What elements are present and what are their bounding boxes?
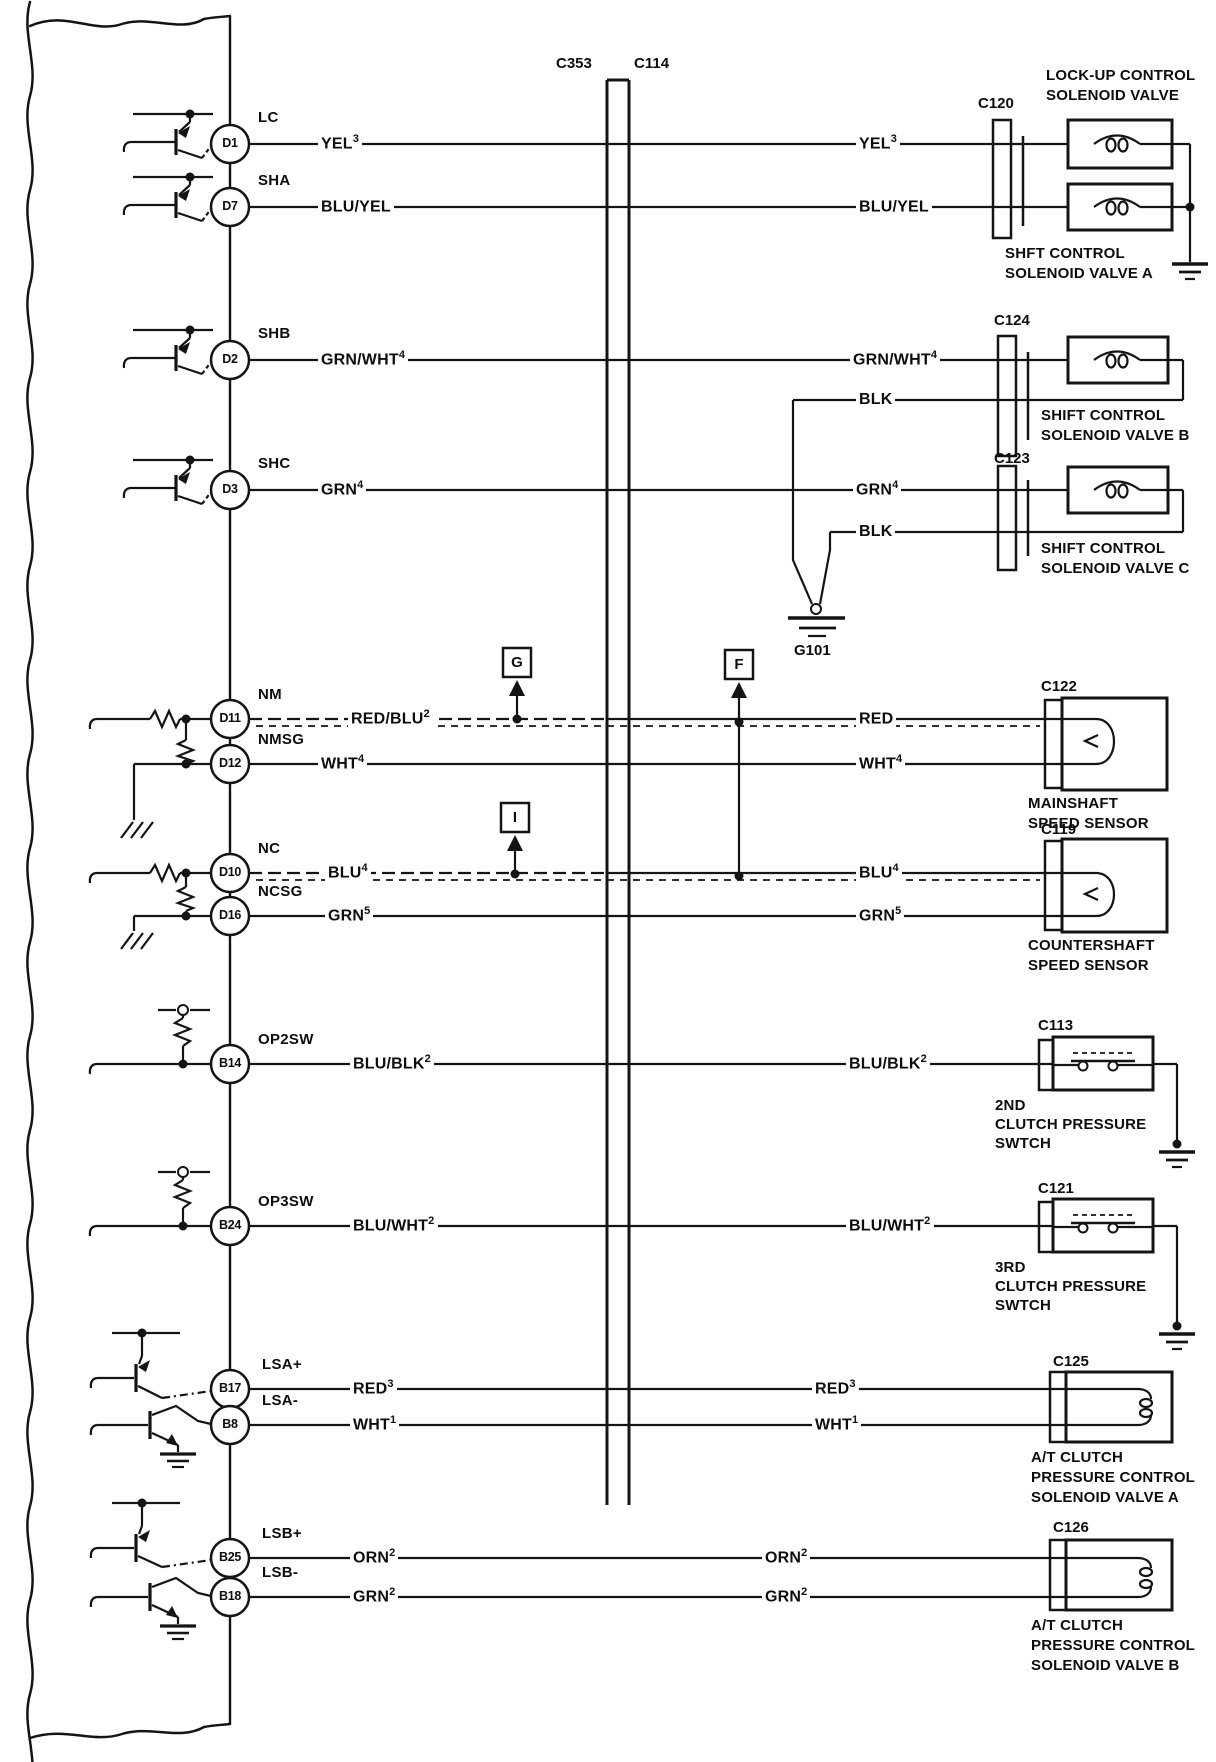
wire-label: GRN/WHT4 <box>850 349 940 370</box>
wire-label: ORN2 <box>350 1547 398 1568</box>
wire-label: RED3 <box>812 1378 859 1399</box>
transistor-pair-icon <box>91 1333 211 1467</box>
resistor-network-icon <box>90 711 211 838</box>
component-name: SOLENOID VALVE A <box>1031 1490 1179 1506</box>
signal-sha: SHA <box>258 173 291 189</box>
component-name: SOLENOID VALVE C <box>1041 561 1190 577</box>
signal-lc: LC <box>258 110 279 126</box>
wire-label: WHT4 <box>856 753 905 774</box>
pin-d10: D10 <box>211 866 249 879</box>
wiring-diagram-page: C353 C114 G F I G101 D1 D7 D2 D3 D11 D12… <box>0 0 1216 1762</box>
pin-b14: B14 <box>211 1057 249 1070</box>
connector-id-c126: C126 <box>1053 1520 1089 1536</box>
connector-c124 <box>998 336 1028 456</box>
ecm-torn-border-icon <box>27 2 230 1762</box>
wire-label: WHT1 <box>350 1414 399 1435</box>
connector-c126 <box>1050 1540 1066 1610</box>
pullup-resistor-icon <box>90 1005 211 1074</box>
wire-label: GRN2 <box>762 1586 810 1607</box>
wire-label: YEL3 <box>318 133 362 154</box>
wire-label: YEL3 <box>856 133 900 154</box>
signal-op3sw: OP3SW <box>258 1194 314 1210</box>
lockup-solenoid-box <box>1068 120 1172 168</box>
wire-nc <box>249 873 1062 880</box>
wire-label: RED/BLU2 <box>348 708 433 729</box>
chassis-ground-icon <box>121 933 153 949</box>
wire-label: BLU4 <box>325 862 371 883</box>
component-name: 2ND <box>995 1098 1026 1114</box>
wire-label: RED <box>856 708 896 729</box>
transistor-icon <box>124 177 213 221</box>
ref-letter-f: F <box>725 650 753 679</box>
signal-nmsg: NMSG <box>258 732 304 748</box>
component-name: SPEED SENSOR <box>1028 958 1149 974</box>
wire-label: BLU/YEL <box>856 196 932 217</box>
signal-nm: NM <box>258 687 282 703</box>
g101-ground-icon <box>788 400 845 636</box>
ref-letter-i: I <box>501 803 529 832</box>
coil-icon <box>1094 136 1140 145</box>
wire-label-blk: BLK <box>856 523 895 542</box>
wire-label: GRN5 <box>325 905 373 926</box>
bus-connector-c353-c114 <box>607 80 629 1505</box>
signal-lsb-plus: LSB+ <box>262 1526 302 1542</box>
countershaft-sensor-box <box>1062 839 1167 932</box>
transistor-icon <box>124 330 213 374</box>
pin-d16: D16 <box>211 909 249 922</box>
wire-label: BLU/YEL <box>318 196 394 217</box>
component-name: PRESSURE CONTROL <box>1031 1470 1195 1486</box>
wire-label: WHT1 <box>812 1414 861 1435</box>
wire-label: ORN2 <box>762 1547 810 1568</box>
pin-d12: D12 <box>211 757 249 770</box>
signal-lsa-minus: LSA- <box>262 1393 298 1409</box>
coil-icon <box>1138 1558 1151 1597</box>
ref-letter-g: G <box>503 648 531 677</box>
pin-b18: B18 <box>211 1590 249 1603</box>
wire-label: BLU/WHT2 <box>846 1215 934 1236</box>
component-name: SOLENOID VALVE B <box>1041 428 1190 444</box>
connector-c120 <box>993 120 1023 238</box>
connector-id-c114: C114 <box>634 56 669 72</box>
component-name: SWTCH <box>995 1298 1051 1314</box>
wire-label: BLU/BLK2 <box>846 1053 930 1074</box>
signal-shb: SHB <box>258 326 291 342</box>
pin-b25: B25 <box>211 1551 249 1564</box>
component-name: LOCK-UP CONTROL <box>1046 68 1195 84</box>
wire-label: GRN5 <box>856 905 904 926</box>
pin-b8: B8 <box>211 1418 249 1431</box>
coil-icon <box>1094 482 1140 491</box>
pin-d1: D1 <box>211 137 249 150</box>
wire-label: BLU4 <box>856 862 902 883</box>
pin-d2: D2 <box>211 353 249 366</box>
signal-op2sw: OP2SW <box>258 1032 314 1048</box>
component-name: MAINSHAFT <box>1028 796 1118 812</box>
connector-id-c113: C113 <box>1038 1018 1073 1034</box>
at-clutch-solenoid-a-box <box>1066 1372 1172 1442</box>
transistor-icon <box>124 114 213 158</box>
connector-id-c353: C353 <box>556 56 592 72</box>
chassis-ground-icon <box>121 822 153 838</box>
component-name: SOLENOID VALVE A <box>1005 266 1153 282</box>
component-name: SOLENOID VALVE B <box>1031 1658 1180 1674</box>
component-name: A/T CLUTCH <box>1031 1618 1123 1634</box>
wire-label: BLU/BLK2 <box>350 1053 434 1074</box>
mainshaft-sensor-box <box>1062 698 1167 790</box>
pin-d3: D3 <box>211 483 249 496</box>
connector-id-c122: C122 <box>1041 679 1077 695</box>
wire-label: GRN4 <box>318 479 366 500</box>
signal-lsa-plus: LSA+ <box>262 1357 302 1373</box>
component-name: SOLENOID VALVE <box>1046 88 1179 104</box>
connector-c125 <box>1050 1372 1066 1442</box>
pin-b17: B17 <box>211 1382 249 1395</box>
wire-label: GRN4 <box>853 479 901 500</box>
signal-ncsg: NCSG <box>258 884 303 900</box>
at-clutch-solenoid-b-box <box>1066 1540 1172 1610</box>
connector-id-c121: C121 <box>1038 1181 1074 1197</box>
component-name: SPEED SENSOR <box>1028 816 1149 832</box>
component-name: SHIFT CONTROL <box>1041 541 1165 557</box>
wire-label-blk: BLK <box>856 391 895 410</box>
component-name: SHFT CONTROL <box>1005 246 1125 262</box>
signal-shc: SHC <box>258 456 291 472</box>
component-name: A/T CLUTCH <box>1031 1450 1123 1466</box>
component-name: PRESSURE CONTROL <box>1031 1638 1195 1654</box>
connector-id-c125: C125 <box>1053 1354 1089 1370</box>
ground-label-g101: G101 <box>794 643 831 659</box>
component-name: SHIFT CONTROL <box>1041 408 1165 424</box>
pin-d11: D11 <box>211 712 249 725</box>
connector-id-c123: C123 <box>994 451 1030 467</box>
component-name: COUNTERSHAFT <box>1028 938 1155 954</box>
pin-d7: D7 <box>211 200 249 213</box>
signal-nc: NC <box>258 841 280 857</box>
connector-c122 <box>1045 700 1062 788</box>
transistor-icon <box>124 460 213 504</box>
component-name: CLUTCH PRESSURE <box>995 1279 1146 1295</box>
wire-label: GRN/WHT4 <box>318 349 408 370</box>
component-name: CLUTCH PRESSURE <box>995 1117 1146 1133</box>
coil-icon <box>1094 352 1140 361</box>
component-name: SWTCH <box>995 1136 1051 1152</box>
pressure-switch-box <box>1053 1037 1195 1167</box>
wire-label: GRN2 <box>350 1586 398 1607</box>
pin-b24: B24 <box>211 1219 249 1232</box>
wire-label: BLU/WHT2 <box>350 1215 438 1236</box>
wire-label: WHT4 <box>318 753 367 774</box>
signal-lsb-minus: LSB- <box>262 1565 298 1581</box>
connector-c123 <box>998 466 1028 570</box>
component-name: 3RD <box>995 1260 1026 1276</box>
connector-id-c124: C124 <box>994 313 1030 329</box>
wire-label: RED3 <box>350 1378 397 1399</box>
connector-id-c120: C120 <box>978 96 1014 112</box>
transistor-pair-icon <box>91 1503 211 1639</box>
pullup-resistor-icon <box>90 1167 211 1236</box>
coil-icon <box>1094 199 1140 208</box>
resistor-network-icon <box>90 865 211 949</box>
